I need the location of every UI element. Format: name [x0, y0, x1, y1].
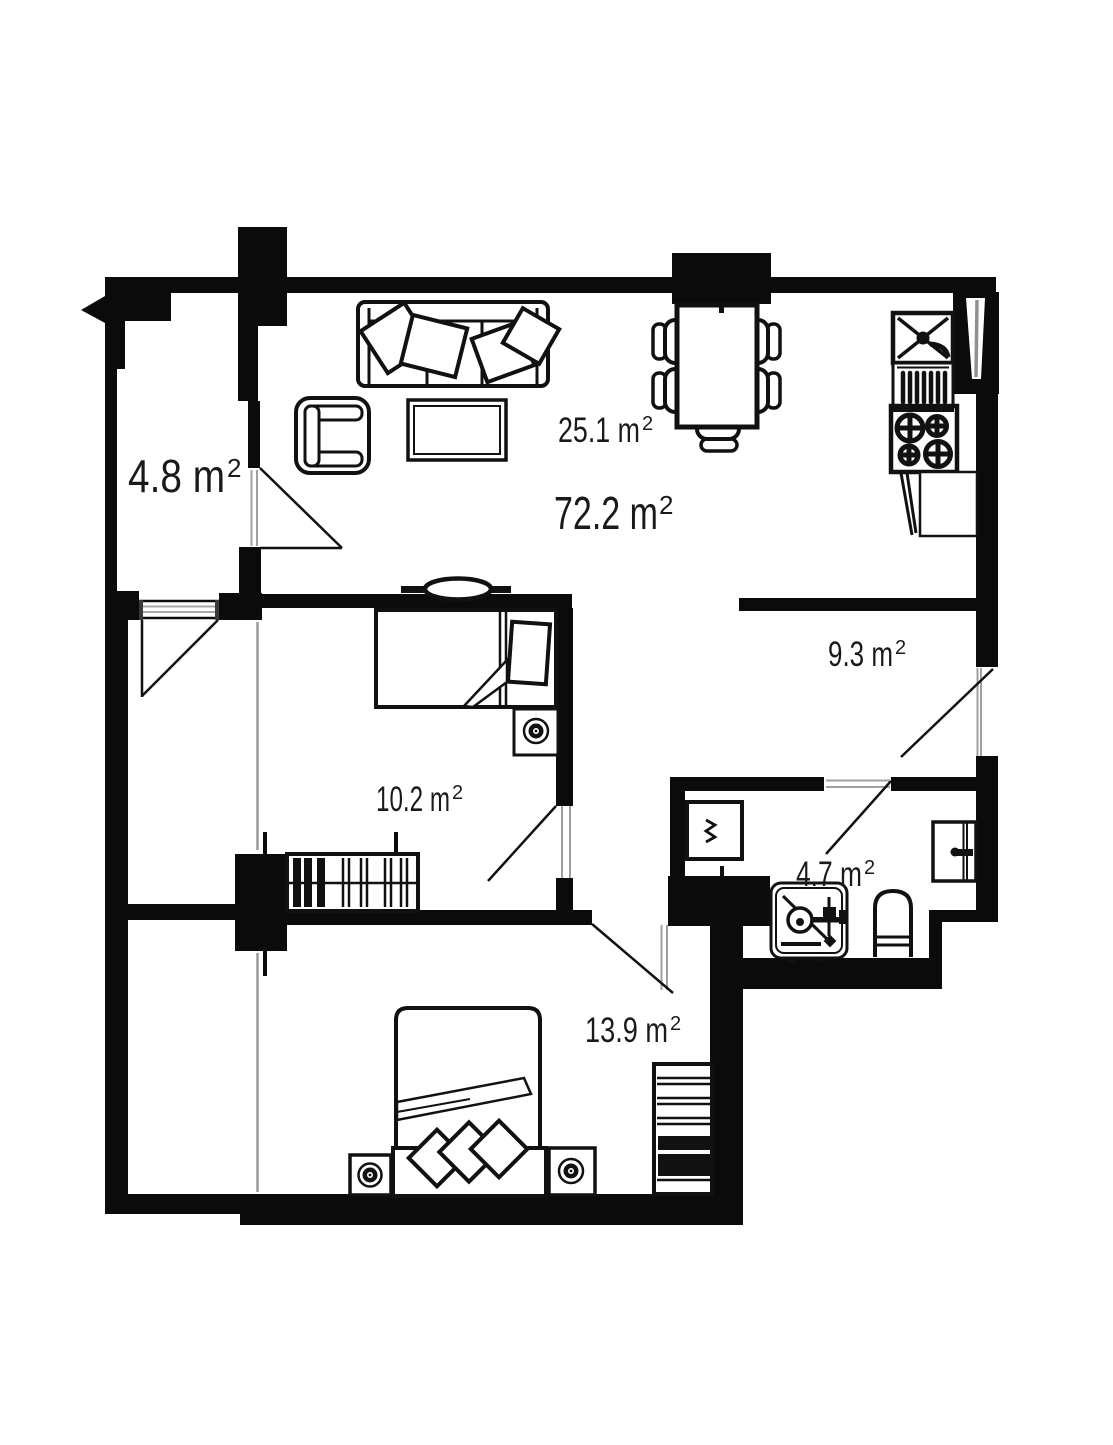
svg-text:2: 2 [227, 453, 241, 483]
svg-text:2: 2 [452, 782, 463, 804]
svg-text:2: 2 [659, 490, 673, 520]
svg-text:13.9 m: 13.9 m [585, 1011, 668, 1050]
svg-text:2: 2 [642, 413, 653, 435]
svg-text:10.2 m: 10.2 m [376, 780, 450, 819]
svg-text:4.8 m: 4.8 m [128, 450, 225, 502]
svg-text:2: 2 [895, 637, 906, 659]
svg-text:2: 2 [864, 857, 875, 879]
svg-text:25.1 m: 25.1 m [558, 411, 640, 450]
svg-text:9.3 m: 9.3 m [828, 635, 893, 674]
svg-text:4.7 m: 4.7 m [796, 855, 862, 894]
svg-text:2: 2 [670, 1013, 681, 1035]
svg-text:72.2 m: 72.2 m [554, 487, 658, 539]
